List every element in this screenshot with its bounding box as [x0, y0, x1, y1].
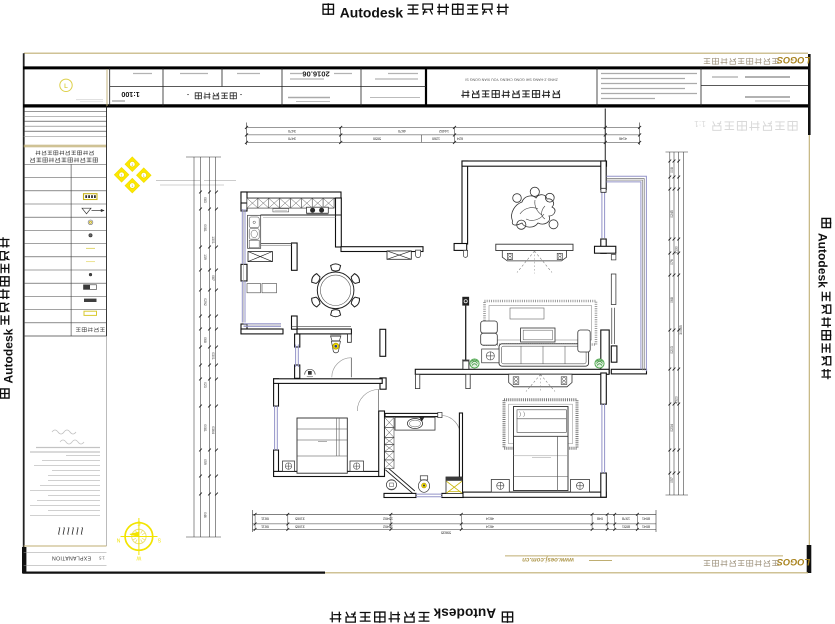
svg-text:31065: 31065: [295, 525, 305, 529]
svg-text:31065: 31065: [295, 517, 305, 521]
svg-text:15402: 15402: [383, 525, 393, 529]
svg-text:L: L: [64, 84, 68, 90]
svg-text:59635: 59635: [441, 531, 451, 535]
svg-text:Autodesk: Autodesk: [816, 233, 830, 288]
svg-text:1:1: 1:1: [694, 119, 706, 129]
svg-text:ZHNG Z-HANG SHI GONG CHENG YOU: ZHNG Z-HANG SHI GONG CHENG YOU XIAN GONG…: [465, 78, 557, 82]
svg-text:4670: 4670: [398, 129, 406, 133]
svg-text:4614: 4614: [486, 516, 494, 520]
svg-text:4614: 4614: [486, 525, 494, 529]
svg-text:139: 139: [203, 254, 207, 260]
svg-text:-: -: [239, 91, 242, 100]
svg-text:4520: 4520: [675, 396, 679, 404]
svg-text:www.oesj.com.cn: www.oesj.com.cn: [522, 556, 574, 563]
svg-text:3470: 3470: [288, 136, 296, 140]
svg-text:1: 1: [143, 174, 145, 178]
svg-text:0292: 0292: [203, 298, 207, 306]
svg-text:3470: 3470: [288, 129, 296, 133]
svg-text:076: 076: [670, 259, 674, 265]
svg-text:057: 057: [670, 477, 674, 483]
svg-text:15402: 15402: [383, 516, 393, 520]
svg-text:30565: 30565: [679, 325, 683, 335]
svg-text:Autodesk: Autodesk: [2, 328, 16, 383]
svg-text:LOGOS: LOGOS: [776, 55, 810, 65]
svg-text:8041: 8041: [642, 516, 650, 520]
svg-text:0245: 0245: [670, 210, 674, 218]
svg-text:Autodesk: Autodesk: [433, 606, 496, 621]
svg-text:0081: 0081: [203, 224, 207, 232]
svg-text:068: 068: [670, 297, 674, 303]
svg-text:1: 1: [131, 163, 133, 167]
svg-text:059: 059: [203, 459, 207, 465]
svg-text:0611: 0611: [261, 525, 269, 529]
svg-text:1:5: 1:5: [98, 556, 104, 561]
svg-text:LOGOS: LOGOS: [776, 557, 810, 567]
svg-text:083: 083: [203, 197, 207, 203]
svg-text:0611: 0611: [261, 516, 269, 520]
svg-text:EXPLANATION: EXPLANATION: [52, 555, 91, 561]
svg-text:048: 048: [597, 516, 603, 520]
svg-text:3130: 3130: [675, 246, 679, 254]
svg-text:llllll: llllll: [56, 525, 83, 537]
svg-text:0081: 0081: [203, 424, 207, 432]
svg-text:087: 087: [211, 275, 215, 281]
svg-text:5050: 5050: [373, 136, 381, 140]
svg-text:008: 008: [670, 167, 674, 173]
svg-text:N: N: [116, 537, 120, 543]
svg-text:624: 624: [457, 136, 463, 140]
svg-text:1: 1: [131, 184, 133, 188]
svg-text:14402: 14402: [439, 129, 449, 133]
svg-text:068: 068: [203, 337, 207, 343]
svg-text:023: 023: [203, 382, 207, 388]
svg-text:1260: 1260: [432, 136, 440, 140]
svg-text:1301: 1301: [211, 236, 215, 244]
svg-text:1:100: 1:100: [121, 90, 139, 99]
svg-text:046: 046: [203, 512, 207, 518]
svg-text:8041: 8041: [642, 525, 650, 529]
svg-text:1978: 1978: [622, 516, 630, 520]
svg-text:2016.06: 2016.06: [302, 69, 329, 78]
svg-text:0203: 0203: [670, 346, 674, 354]
svg-text:Autodesk: Autodesk: [340, 5, 404, 21]
svg-text:0364: 0364: [211, 426, 215, 434]
svg-text:8051: 8051: [622, 525, 630, 529]
svg-text:1: 1: [121, 173, 123, 177]
svg-text:-: -: [186, 91, 189, 100]
svg-text:0301: 0301: [211, 352, 215, 360]
svg-text:0234: 0234: [670, 424, 674, 432]
svg-text:4146: 4146: [619, 136, 627, 140]
svg-text:W: W: [136, 555, 141, 561]
